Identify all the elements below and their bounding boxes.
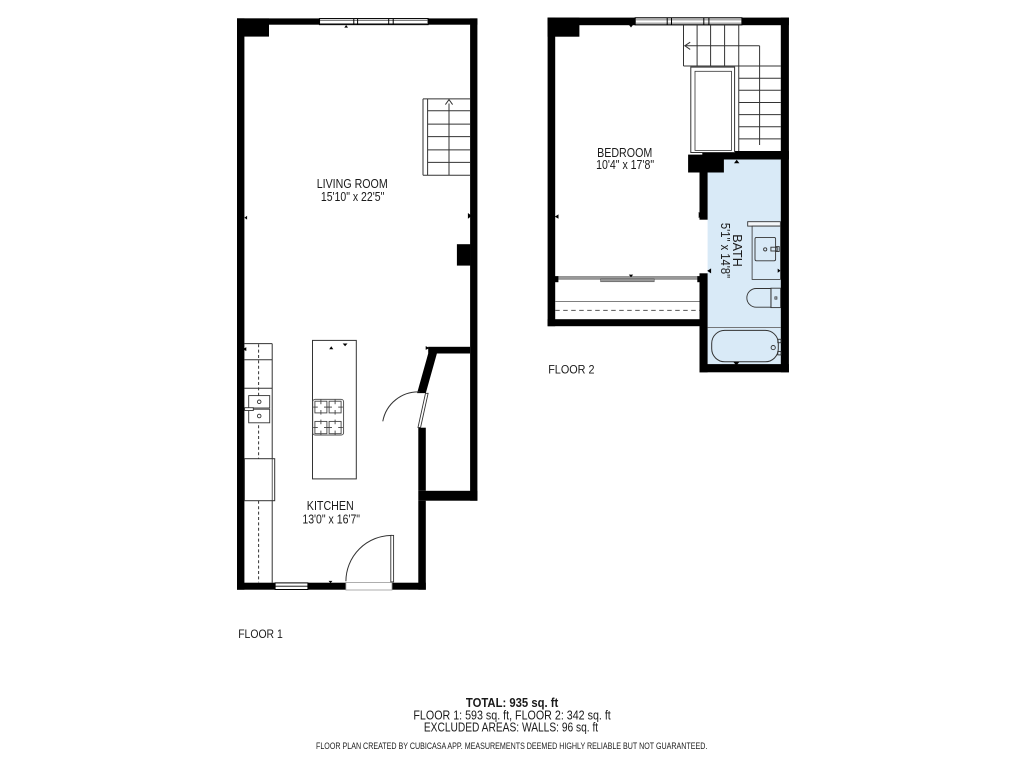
svg-text:FLOOR 1: FLOOR 1 bbox=[238, 629, 283, 641]
svg-text:FLOOR 2: FLOOR 2 bbox=[548, 364, 594, 376]
svg-text:13'0" x 16'7": 13'0" x 16'7" bbox=[302, 512, 360, 526]
svg-text:15'10" x 22'5": 15'10" x 22'5" bbox=[321, 190, 385, 204]
svg-text:KITCHEN: KITCHEN bbox=[307, 499, 354, 513]
svg-text:10'4" x 17'8": 10'4" x 17'8" bbox=[596, 158, 654, 172]
svg-text:LIVING ROOM: LIVING ROOM bbox=[317, 177, 388, 191]
svg-text:EXCLUDED AREAS: WALLS: 96 sq.: EXCLUDED AREAS: WALLS: 96 sq. ft bbox=[424, 719, 599, 734]
svg-text:FLOOR PLAN CREATED BY CUBICASA: FLOOR PLAN CREATED BY CUBICASA APP. MEAS… bbox=[316, 741, 707, 752]
svg-text:5'1" x 14'8": 5'1" x 14'8" bbox=[718, 223, 732, 278]
